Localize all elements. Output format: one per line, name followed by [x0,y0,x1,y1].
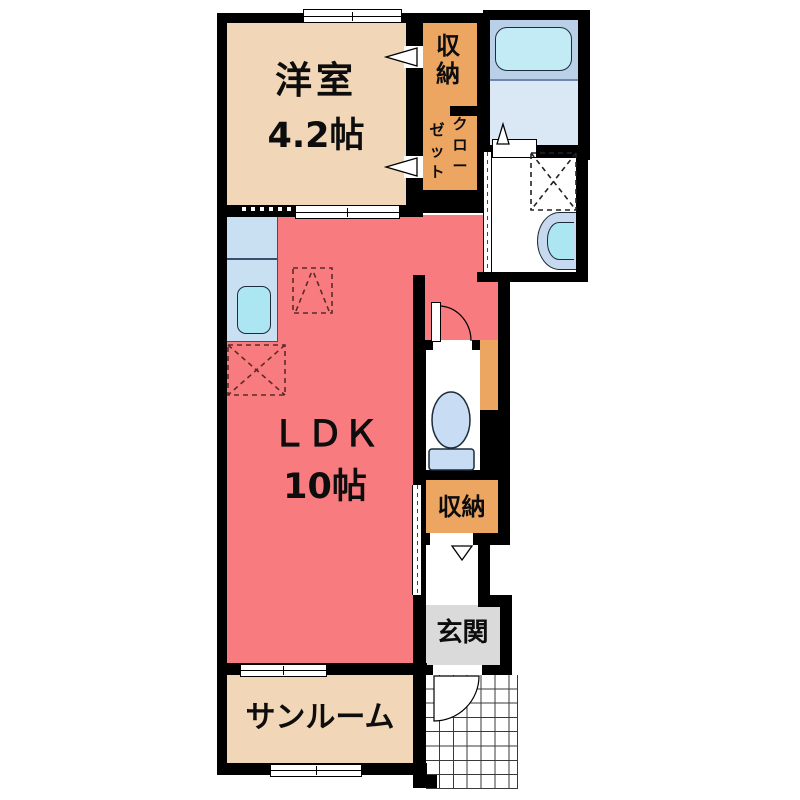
closet-label-right: ク ロ ー [451,114,469,177]
bathtub [495,27,572,71]
wall-washroom-right [576,145,588,282]
entrance-label: 玄関 [425,619,500,649]
bathroom-lower-floor [490,80,578,147]
entrance-door-opening [433,665,482,675]
window-sunroom-bottom [270,764,362,777]
sunroom-label: サンルーム [230,701,410,736]
wall-storage-bottom [406,190,490,213]
western-room-label: 洋室 [236,60,396,103]
floorplan: 洋室 4.2帖 収 納 ク ロ ー ゼ ッ ト ＬＤＫ 10帖 収納 玄関 サン… [0,0,800,800]
wall-washroom-bottom [477,272,588,282]
storage-mid-door-opening [430,533,473,545]
ldk-size: 10帖 [245,467,405,507]
kitchen-counter-divider [227,258,278,260]
wall-vestibule-stub [413,275,425,340]
storage-mid-label: 収納 [425,494,498,522]
ldk-floor-extension [413,215,483,272]
wall-bath-top [483,10,590,20]
wall-porch-step [413,775,437,788]
wall-toilet-bottom [413,470,498,480]
bathroom-divider-line [490,79,578,81]
kitchen-sink [237,286,271,334]
storage-top-label: 収 納 [434,33,462,88]
entrance-porch-tiles [426,675,518,789]
ldk-hallway-sliding-door [412,485,422,595]
closet-door-opening-top [404,46,423,68]
window-western-top [303,9,402,23]
toilet-vestibule-floor [413,272,498,340]
hallway-floor [425,545,478,605]
western-room-size: 4.2帖 [236,116,396,156]
toilet-door-leaf [431,302,441,342]
wall-left-exterior [217,13,227,775]
wall-hallway-right [478,545,490,595]
bathroom-door-leaf [492,139,537,158]
closet-door-opening-bottom [404,156,423,178]
wall-western-storage [406,13,423,213]
washbasin-bowl [547,222,574,260]
wall-entrance-right [500,595,512,675]
washroom-sliding-door [483,152,492,272]
closet-label-left: ゼ ッ ト [428,120,446,183]
western-room-floor [227,23,408,207]
window-ldk-sunroom [240,664,327,677]
wall-right-exterior-mid [498,272,510,545]
toilet-room-floor [425,350,480,470]
wall-bath-right [578,10,590,160]
window-western-ldk [295,205,400,219]
dotted-opening-western [242,207,296,211]
toilet-cabinet [480,340,498,410]
ldk-label: ＬＤＫ [245,414,405,455]
